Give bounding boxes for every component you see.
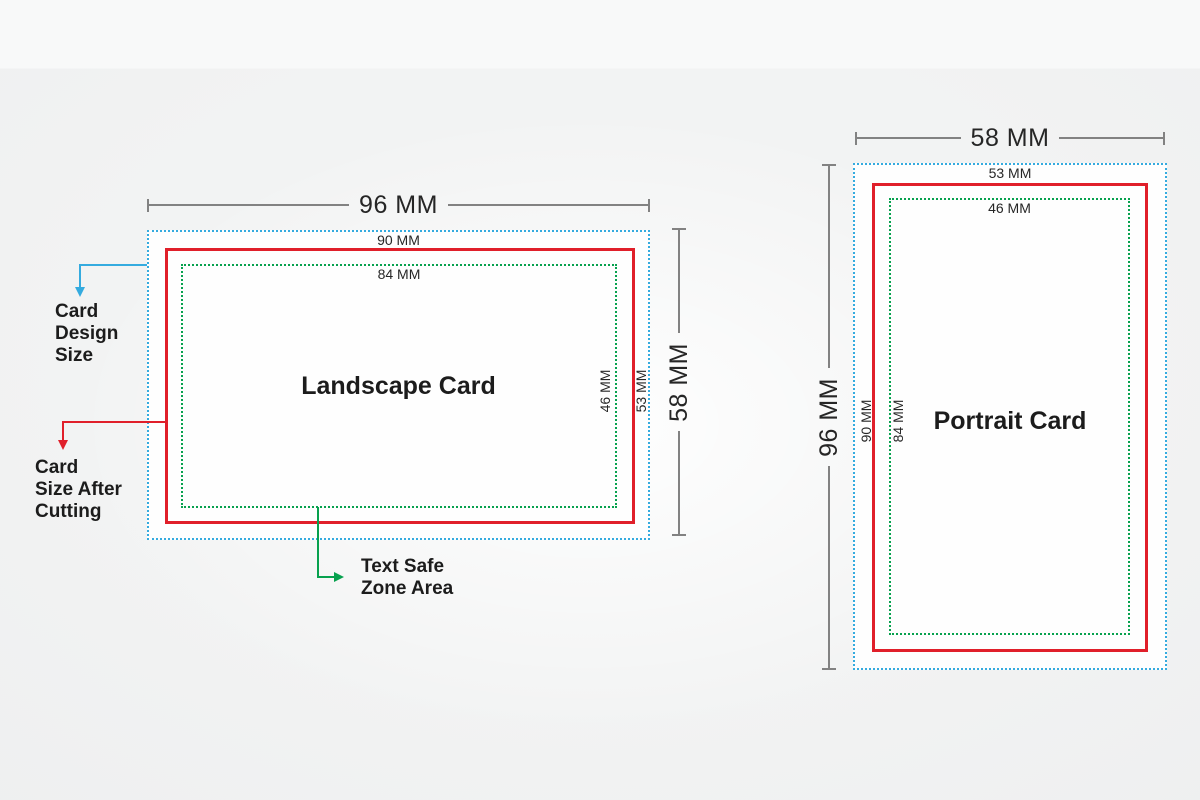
dimension-tick bbox=[1163, 132, 1165, 145]
portrait-design-width-dimension: 58 MM bbox=[855, 123, 1165, 153]
landscape-design-width-label: 96 MM bbox=[359, 191, 438, 220]
portrait-cut-width-label: 53 MM bbox=[853, 166, 1167, 180]
landscape-safe-width-label: 84 MM bbox=[181, 267, 617, 281]
landscape-cut-width-label: 90 MM bbox=[147, 233, 650, 247]
dimension-tick bbox=[648, 199, 650, 212]
dimension-line bbox=[448, 204, 648, 206]
safe-zone-callout-line bbox=[317, 507, 319, 578]
safe-zone-legend-label: Text Safe Zone Area bbox=[361, 556, 453, 600]
arrow-down-icon bbox=[75, 287, 85, 297]
design-size-legend-label: Card Design Size bbox=[55, 301, 118, 367]
arrow-down-icon bbox=[58, 440, 68, 450]
cut-size-callout-line bbox=[62, 421, 64, 441]
landscape-design-height-label: 58 MM bbox=[665, 343, 694, 422]
dimension-line bbox=[828, 166, 830, 368]
safe-zone-callout-line bbox=[317, 576, 335, 578]
landscape-card-title: Landscape Card bbox=[147, 372, 650, 401]
dimension-line bbox=[828, 466, 830, 668]
design-size-callout-line bbox=[80, 264, 147, 266]
dimension-line bbox=[678, 230, 680, 333]
portrait-design-height-label: 96 MM bbox=[815, 378, 844, 457]
arrow-right-icon bbox=[334, 572, 344, 582]
dimension-line bbox=[678, 431, 680, 534]
cut-size-legend-label: Card Size After Cutting bbox=[35, 457, 122, 523]
dimension-line bbox=[1059, 137, 1163, 139]
landscape-design-width-dimension: 96 MM bbox=[147, 190, 650, 220]
design-size-callout-line bbox=[79, 264, 81, 288]
landscape-design-height-dimension: 58 MM bbox=[672, 228, 686, 536]
dimension-line bbox=[149, 204, 349, 206]
portrait-card-title: Portrait Card bbox=[853, 407, 1167, 436]
portrait-design-height-dimension: 96 MM bbox=[822, 164, 836, 670]
portrait-safe-width-label: 46 MM bbox=[889, 201, 1130, 215]
portrait-design-width-label: 58 MM bbox=[971, 124, 1050, 153]
card-size-diagram: 96 MM 90 MM 84 MM Landscape Card 46 MM 5… bbox=[0, 0, 1200, 800]
dimension-tick bbox=[672, 534, 686, 536]
cut-size-callout-line bbox=[63, 421, 165, 423]
dimension-tick bbox=[822, 668, 836, 670]
landscape-cut-height-label: 53 MM bbox=[634, 370, 648, 413]
landscape-safe-height-label: 46 MM bbox=[598, 370, 612, 413]
dimension-line bbox=[857, 137, 961, 139]
